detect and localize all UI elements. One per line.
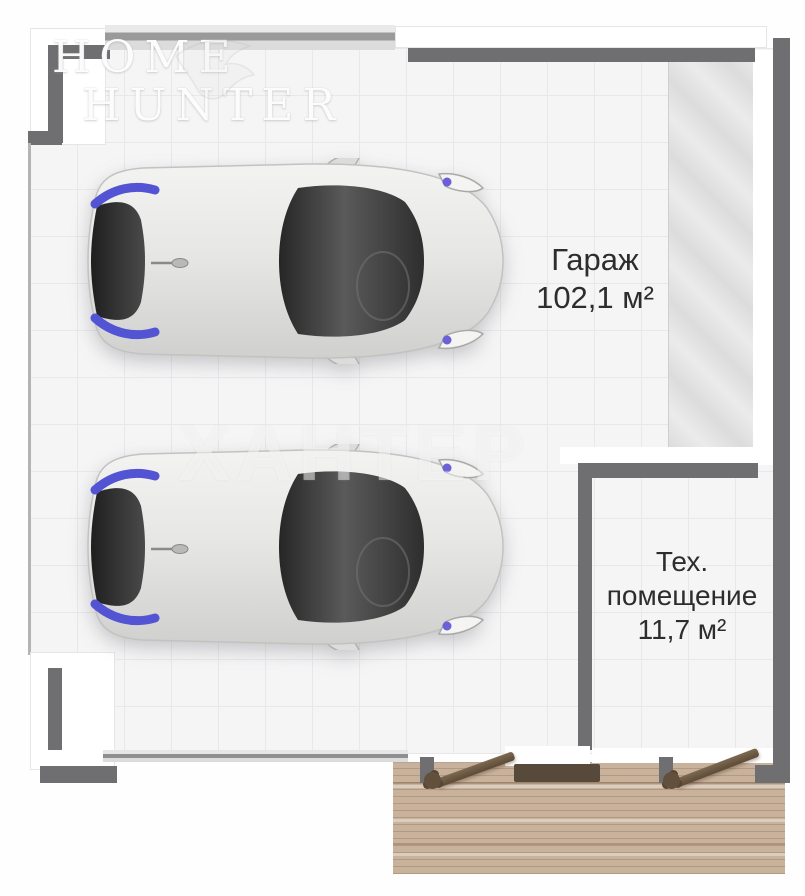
- wall-bottom-garage: [103, 750, 408, 762]
- eagle-icon: [168, 34, 260, 106]
- room-area: 102,1 м²: [500, 279, 690, 317]
- floor-plan: Гараж 102,1 м² Тех. помещение 11,7 м² HO…: [0, 0, 805, 896]
- room-label-tech: Тех. помещение 11,7 м²: [592, 545, 772, 647]
- door-handle-icon: [663, 772, 680, 789]
- doormat: [514, 764, 600, 782]
- door-handle-icon: [424, 772, 441, 789]
- car-top-icon: [83, 158, 507, 364]
- room-name: Тех. помещение: [592, 545, 772, 613]
- wall-gap-strip-right: [753, 50, 773, 465]
- wall-gap-strip-tech-top: [560, 447, 773, 464]
- wall-right: [773, 38, 790, 782]
- wall-top: [408, 48, 755, 62]
- wall-tech-top: [578, 463, 758, 478]
- wall-left-line: [28, 143, 31, 655]
- room-name: Гараж: [500, 241, 690, 279]
- wall-bottom-left-vertical: [48, 668, 62, 750]
- outer-wall-band-top: [395, 26, 767, 48]
- room-label-garage: Гараж 102,1 м²: [500, 241, 690, 317]
- wall-top-left-foot: [28, 131, 62, 145]
- room-area: 11,7 м²: [592, 613, 772, 647]
- wall-bottom-left-foot: [40, 766, 117, 783]
- wall-tech-left: [578, 463, 592, 750]
- watermark-center: ХАНТЕР: [178, 408, 530, 499]
- doorway-threshold: [505, 746, 590, 766]
- wall-door-stub-right: [755, 765, 790, 783]
